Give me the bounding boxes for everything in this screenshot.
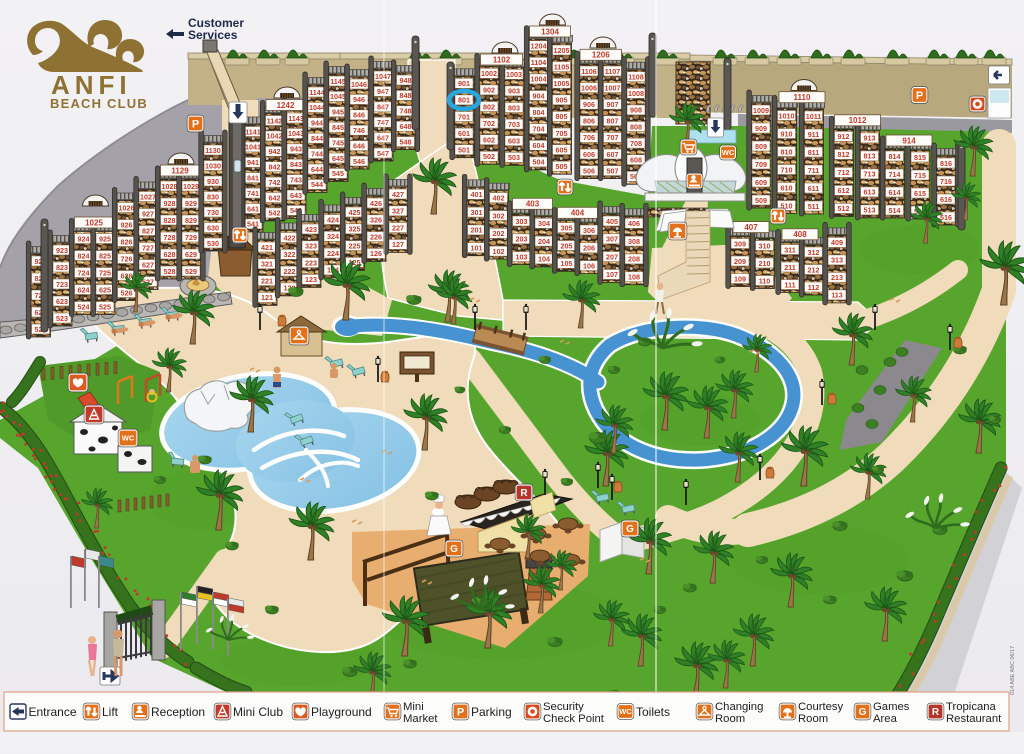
svg-text:613: 613	[864, 188, 876, 197]
svg-text:526: 526	[121, 288, 133, 297]
svg-text:123: 123	[305, 275, 317, 284]
svg-text:Games: Games	[873, 701, 910, 713]
svg-text:321: 321	[261, 260, 273, 269]
svg-text:Changing: Changing	[715, 701, 763, 713]
svg-text:204: 204	[538, 237, 550, 246]
svg-text:524: 524	[78, 302, 90, 311]
svg-text:307: 307	[606, 235, 618, 244]
svg-text:523: 523	[56, 314, 68, 323]
svg-text:113: 113	[831, 291, 843, 300]
svg-text:715: 715	[914, 171, 926, 180]
svg-text:806: 806	[583, 117, 595, 126]
svg-text:848: 848	[400, 91, 412, 100]
svg-text:924: 924	[78, 234, 90, 243]
svg-text:1104: 1104	[531, 58, 547, 67]
svg-text:210: 210	[759, 259, 771, 268]
svg-text:Area: Area	[873, 713, 898, 725]
svg-text:623: 623	[56, 297, 68, 306]
svg-text:Mini Club: Mini Club	[233, 705, 283, 719]
svg-text:401: 401	[471, 190, 483, 199]
svg-text:R: R	[932, 707, 940, 718]
svg-text:Playground: Playground	[311, 705, 372, 719]
svg-text:901: 901	[458, 79, 470, 88]
svg-text:727: 727	[142, 243, 154, 252]
svg-text:829: 829	[185, 216, 197, 225]
svg-text:207: 207	[606, 252, 618, 261]
svg-text:1130: 1130	[205, 146, 221, 155]
svg-text:504: 504	[533, 158, 545, 167]
svg-text:905: 905	[556, 96, 568, 105]
svg-text:222: 222	[284, 267, 296, 276]
svg-text:925: 925	[99, 234, 111, 243]
svg-text:903: 903	[508, 87, 520, 96]
svg-text:705: 705	[556, 129, 568, 138]
svg-text:827: 827	[142, 226, 154, 235]
svg-text:815: 815	[914, 153, 926, 162]
svg-text:604: 604	[533, 141, 545, 150]
svg-text:814: 814	[889, 152, 901, 161]
svg-text:203: 203	[516, 235, 528, 244]
svg-text:322: 322	[284, 250, 296, 259]
svg-text:625: 625	[99, 285, 111, 294]
svg-text:1204: 1204	[531, 42, 547, 51]
svg-text:746: 746	[353, 126, 365, 135]
svg-text:505: 505	[556, 162, 568, 171]
svg-text:WC: WC	[122, 434, 135, 443]
svg-text:828: 828	[164, 216, 176, 225]
svg-text:126: 126	[370, 249, 382, 258]
svg-text:928: 928	[164, 199, 176, 208]
svg-text:306: 306	[583, 226, 595, 235]
svg-text:926: 926	[121, 220, 133, 229]
svg-text:641: 641	[247, 204, 259, 213]
svg-text:G: G	[859, 707, 867, 718]
svg-text:528: 528	[164, 267, 176, 276]
svg-text:1042: 1042	[267, 132, 283, 141]
svg-text:1007: 1007	[605, 83, 621, 92]
svg-text:1145: 1145	[330, 77, 346, 86]
svg-text:1005: 1005	[554, 79, 570, 88]
svg-text:213: 213	[831, 273, 843, 282]
svg-text:804: 804	[533, 108, 545, 117]
svg-text:816: 816	[940, 159, 952, 168]
svg-text:1008: 1008	[628, 89, 644, 98]
svg-text:611: 611	[808, 184, 820, 193]
svg-text:609: 609	[755, 178, 767, 187]
svg-text:308: 308	[628, 237, 640, 246]
svg-text:1006: 1006	[581, 83, 597, 92]
svg-text:1046: 1046	[351, 80, 367, 89]
svg-text:Services: Services	[188, 28, 238, 42]
svg-text:G: G	[450, 544, 458, 555]
svg-text:1143: 1143	[288, 114, 304, 123]
svg-text:930: 930	[207, 177, 219, 186]
svg-text:610: 610	[781, 183, 793, 192]
svg-text:WC: WC	[722, 148, 735, 157]
svg-text:1142: 1142	[267, 116, 283, 125]
svg-text:709: 709	[755, 160, 767, 169]
svg-text:1045: 1045	[330, 92, 346, 101]
svg-text:111: 111	[784, 280, 795, 289]
svg-text:407: 407	[744, 223, 758, 232]
svg-text:405: 405	[606, 217, 618, 226]
svg-text:606: 606	[583, 150, 595, 159]
svg-text:326: 326	[370, 216, 382, 225]
svg-text:546: 546	[353, 157, 365, 166]
svg-text:BEACH CLUB: BEACH CLUB	[50, 96, 148, 111]
svg-text:404: 404	[571, 209, 585, 218]
svg-text:702: 702	[483, 119, 495, 128]
svg-text:726: 726	[121, 254, 133, 263]
svg-text:942: 942	[269, 147, 281, 156]
svg-text:844: 844	[311, 134, 323, 143]
svg-text:304: 304	[538, 219, 550, 228]
svg-text:1129: 1129	[171, 166, 189, 175]
svg-text:645: 645	[332, 154, 344, 163]
svg-text:1044: 1044	[309, 103, 325, 112]
svg-text:714: 714	[889, 170, 901, 179]
svg-text:614: 614	[889, 188, 901, 197]
svg-text:226: 226	[370, 232, 382, 241]
svg-text:205: 205	[561, 241, 573, 250]
svg-text:408: 408	[793, 230, 807, 239]
svg-text:310: 310	[759, 241, 771, 250]
svg-text:303: 303	[516, 217, 528, 226]
svg-text:1304: 1304	[541, 27, 559, 36]
svg-text:946: 946	[353, 95, 365, 104]
svg-text:545: 545	[332, 169, 344, 178]
svg-text:1242: 1242	[277, 101, 295, 110]
svg-text:Entrance: Entrance	[29, 705, 77, 719]
svg-text:807: 807	[607, 117, 619, 126]
svg-text:109: 109	[734, 274, 746, 283]
svg-text:913: 913	[864, 134, 876, 143]
svg-text:Courtesy: Courtesy	[798, 701, 844, 713]
svg-text:525: 525	[99, 302, 111, 311]
svg-text:105: 105	[561, 259, 573, 268]
svg-text:101: 101	[471, 244, 483, 253]
svg-text:Tropicana: Tropicana	[946, 701, 997, 713]
svg-text:014 ABE ABC 06/17: 014 ABE ABC 06/17	[1010, 646, 1016, 695]
svg-text:104: 104	[538, 255, 550, 264]
svg-text:716: 716	[940, 177, 952, 186]
svg-text:102: 102	[493, 247, 505, 256]
svg-text:110: 110	[759, 276, 771, 285]
svg-text:825: 825	[99, 251, 111, 260]
svg-text:309: 309	[734, 239, 746, 248]
svg-text:710: 710	[781, 165, 793, 174]
svg-text:225: 225	[349, 241, 361, 250]
svg-text:923: 923	[56, 246, 68, 255]
svg-text:P: P	[916, 90, 923, 102]
svg-text:701: 701	[458, 112, 470, 121]
svg-text:1043: 1043	[288, 129, 304, 138]
svg-text:1003: 1003	[506, 70, 522, 79]
svg-text:802: 802	[483, 102, 495, 111]
svg-text:748: 748	[400, 107, 412, 116]
svg-text:845: 845	[332, 123, 344, 132]
svg-text:211: 211	[784, 263, 796, 272]
svg-text:513: 513	[864, 206, 876, 215]
svg-text:805: 805	[556, 112, 568, 121]
svg-text:602: 602	[483, 136, 495, 145]
svg-text:108: 108	[628, 273, 640, 282]
svg-text:713: 713	[864, 170, 876, 179]
svg-text:813: 813	[864, 152, 876, 161]
svg-text:909: 909	[755, 124, 767, 133]
svg-text:1144: 1144	[309, 88, 325, 97]
svg-text:1205: 1205	[554, 46, 570, 55]
svg-text:642: 642	[269, 193, 281, 202]
svg-text:741: 741	[247, 189, 259, 198]
svg-text:945: 945	[332, 108, 344, 117]
svg-text:904: 904	[533, 91, 545, 100]
svg-text:409: 409	[831, 238, 843, 247]
svg-text:503: 503	[508, 153, 520, 162]
svg-text:927: 927	[142, 209, 154, 218]
svg-text:742: 742	[269, 178, 281, 187]
svg-text:302: 302	[493, 211, 505, 220]
svg-text:403: 403	[526, 200, 540, 209]
svg-text:912: 912	[838, 132, 850, 141]
svg-text:643: 643	[290, 191, 302, 200]
svg-text:511: 511	[808, 202, 820, 211]
svg-text:729: 729	[185, 233, 197, 242]
svg-text:201: 201	[471, 226, 483, 235]
svg-text:811: 811	[808, 148, 820, 157]
svg-text:Reception: Reception	[151, 705, 205, 719]
svg-text:103: 103	[516, 252, 528, 261]
svg-text:R: R	[520, 488, 528, 499]
svg-text:708: 708	[630, 139, 642, 148]
svg-text:703: 703	[508, 120, 520, 129]
svg-text:509: 509	[755, 196, 767, 205]
svg-text:826: 826	[121, 237, 133, 246]
svg-text:1004: 1004	[531, 75, 547, 84]
svg-text:221: 221	[261, 276, 273, 285]
svg-text:628: 628	[164, 250, 176, 259]
svg-text:744: 744	[311, 149, 323, 158]
svg-text:223: 223	[305, 258, 317, 267]
svg-text:624: 624	[78, 285, 90, 294]
svg-text:629: 629	[185, 250, 197, 259]
svg-text:1106: 1106	[581, 67, 597, 76]
svg-text:1009: 1009	[753, 106, 769, 115]
svg-text:107: 107	[606, 270, 618, 279]
svg-text:730: 730	[207, 208, 219, 217]
svg-text:Check Point: Check Point	[543, 713, 605, 725]
svg-text:616: 616	[940, 195, 952, 204]
svg-text:Room: Room	[798, 713, 828, 725]
svg-text:902: 902	[483, 86, 495, 95]
svg-text:212: 212	[808, 265, 820, 274]
svg-text:808: 808	[630, 122, 642, 131]
svg-text:743: 743	[290, 175, 302, 184]
svg-text:627: 627	[142, 260, 154, 269]
svg-text:313: 313	[831, 256, 843, 265]
svg-text:324: 324	[327, 232, 339, 241]
svg-text:601: 601	[458, 129, 470, 138]
svg-text:112: 112	[808, 283, 820, 292]
svg-text:948: 948	[400, 76, 412, 85]
svg-text:911: 911	[808, 130, 820, 139]
svg-text:846: 846	[353, 111, 365, 120]
svg-text:106: 106	[583, 261, 595, 270]
svg-text:728: 728	[164, 233, 176, 242]
svg-text:424: 424	[327, 215, 339, 224]
svg-text:809: 809	[755, 142, 767, 151]
svg-text:544: 544	[311, 180, 323, 189]
svg-text:422: 422	[284, 233, 296, 242]
svg-text:706: 706	[583, 133, 595, 142]
svg-text:941: 941	[247, 158, 259, 167]
svg-text:506: 506	[583, 166, 595, 175]
svg-text:224: 224	[327, 249, 339, 258]
svg-text:1030: 1030	[205, 161, 221, 170]
svg-text:724: 724	[78, 268, 90, 277]
svg-text:514: 514	[889, 206, 901, 215]
svg-text:1110: 1110	[794, 93, 811, 102]
svg-text:801: 801	[458, 96, 470, 105]
svg-text:Restaurant: Restaurant	[946, 713, 1002, 725]
svg-text:425: 425	[349, 208, 361, 217]
svg-text:Market: Market	[403, 713, 438, 725]
svg-text:227: 227	[392, 223, 404, 232]
svg-text:1010: 1010	[779, 111, 795, 120]
svg-text:312: 312	[808, 248, 820, 257]
svg-text:1206: 1206	[592, 51, 610, 60]
svg-text:423: 423	[305, 225, 317, 234]
svg-text:725: 725	[99, 268, 111, 277]
svg-text:529: 529	[185, 267, 197, 276]
svg-text:648: 648	[400, 122, 412, 131]
svg-text:944: 944	[311, 119, 323, 128]
svg-text:907: 907	[607, 100, 619, 109]
svg-text:704: 704	[533, 125, 545, 134]
svg-text:530: 530	[207, 239, 219, 248]
svg-text:G: G	[626, 524, 634, 535]
svg-text:206: 206	[583, 244, 595, 253]
svg-text:323: 323	[305, 242, 317, 251]
svg-text:630: 630	[207, 223, 219, 232]
svg-text:WC: WC	[619, 707, 632, 716]
svg-text:644: 644	[311, 165, 323, 174]
svg-text:906: 906	[583, 100, 595, 109]
svg-text:402: 402	[493, 194, 505, 203]
svg-text:841: 841	[247, 174, 259, 183]
svg-text:1002: 1002	[481, 69, 497, 78]
svg-text:208: 208	[628, 255, 640, 264]
svg-text:Toilets: Toilets	[636, 705, 670, 719]
svg-text:812: 812	[838, 150, 850, 159]
svg-text:908: 908	[630, 106, 642, 115]
svg-text:823: 823	[56, 263, 68, 272]
svg-text:502: 502	[483, 152, 495, 161]
svg-text:507: 507	[607, 166, 619, 175]
svg-text:723: 723	[56, 280, 68, 289]
svg-text:943: 943	[290, 145, 302, 154]
svg-text:1141: 1141	[245, 127, 261, 136]
svg-text:1026: 1026	[119, 203, 135, 212]
svg-text:202: 202	[493, 229, 505, 238]
svg-text:1107: 1107	[605, 67, 621, 76]
svg-text:605: 605	[556, 145, 568, 154]
svg-text:1105: 1105	[554, 62, 570, 71]
svg-text:646: 646	[353, 141, 365, 150]
svg-text:127: 127	[392, 240, 404, 249]
svg-text:121: 121	[261, 293, 273, 302]
svg-text:910: 910	[781, 129, 793, 138]
svg-text:707: 707	[607, 133, 619, 142]
svg-text:615: 615	[914, 189, 926, 198]
svg-text:712: 712	[838, 168, 850, 177]
svg-text:603: 603	[508, 137, 520, 146]
svg-text:501: 501	[458, 146, 470, 155]
svg-text:421: 421	[261, 243, 273, 252]
svg-text:406: 406	[628, 219, 640, 228]
svg-text:512: 512	[838, 204, 850, 213]
svg-text:Room: Room	[715, 713, 745, 725]
svg-text:1028: 1028	[162, 182, 178, 191]
svg-text:427: 427	[392, 190, 404, 199]
svg-text:929: 929	[185, 199, 197, 208]
svg-text:914: 914	[902, 136, 916, 145]
svg-text:1012: 1012	[849, 116, 867, 125]
svg-text:542: 542	[269, 209, 281, 218]
svg-text:311: 311	[784, 245, 796, 254]
svg-text:1025: 1025	[85, 218, 103, 227]
svg-text:843: 843	[290, 160, 302, 169]
svg-text:608: 608	[630, 156, 642, 165]
svg-text:325: 325	[349, 225, 361, 234]
svg-text:842: 842	[269, 163, 281, 172]
svg-text:1108: 1108	[628, 73, 644, 82]
svg-text:Mini: Mini	[403, 701, 424, 713]
svg-text:711: 711	[808, 166, 820, 175]
svg-text:607: 607	[607, 150, 619, 159]
svg-text:1102: 1102	[493, 55, 511, 64]
svg-text:1041: 1041	[245, 143, 261, 152]
svg-text:612: 612	[838, 186, 850, 195]
svg-text:301: 301	[471, 208, 483, 217]
svg-text:209: 209	[734, 257, 746, 266]
svg-text:327: 327	[392, 207, 404, 216]
svg-text:824: 824	[78, 251, 90, 260]
svg-text:Lift: Lift	[102, 705, 119, 719]
svg-text:810: 810	[781, 147, 793, 156]
svg-text:1029: 1029	[183, 182, 199, 191]
svg-text:426: 426	[370, 199, 382, 208]
svg-text:803: 803	[508, 103, 520, 112]
svg-text:548: 548	[400, 137, 412, 146]
svg-text:1027: 1027	[140, 192, 156, 201]
svg-text:745: 745	[332, 138, 344, 147]
svg-text:Parking: Parking	[471, 705, 512, 719]
svg-text:P: P	[457, 706, 464, 718]
svg-text:830: 830	[207, 192, 219, 201]
svg-text:1011: 1011	[806, 112, 822, 121]
svg-text:305: 305	[561, 224, 573, 233]
svg-text:Security: Security	[543, 701, 584, 713]
svg-text:P: P	[192, 118, 199, 130]
